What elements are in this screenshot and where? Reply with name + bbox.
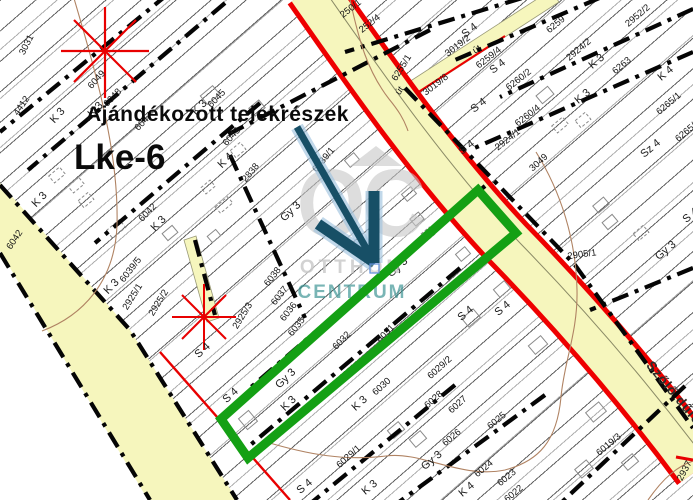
annotation-arrow [297, 127, 379, 273]
annotation-layer [0, 0, 693, 500]
cadastral-map: 303144126049K 36048K 36047K 360456043K 4… [0, 0, 693, 500]
arrow-handle [370, 264, 379, 273]
